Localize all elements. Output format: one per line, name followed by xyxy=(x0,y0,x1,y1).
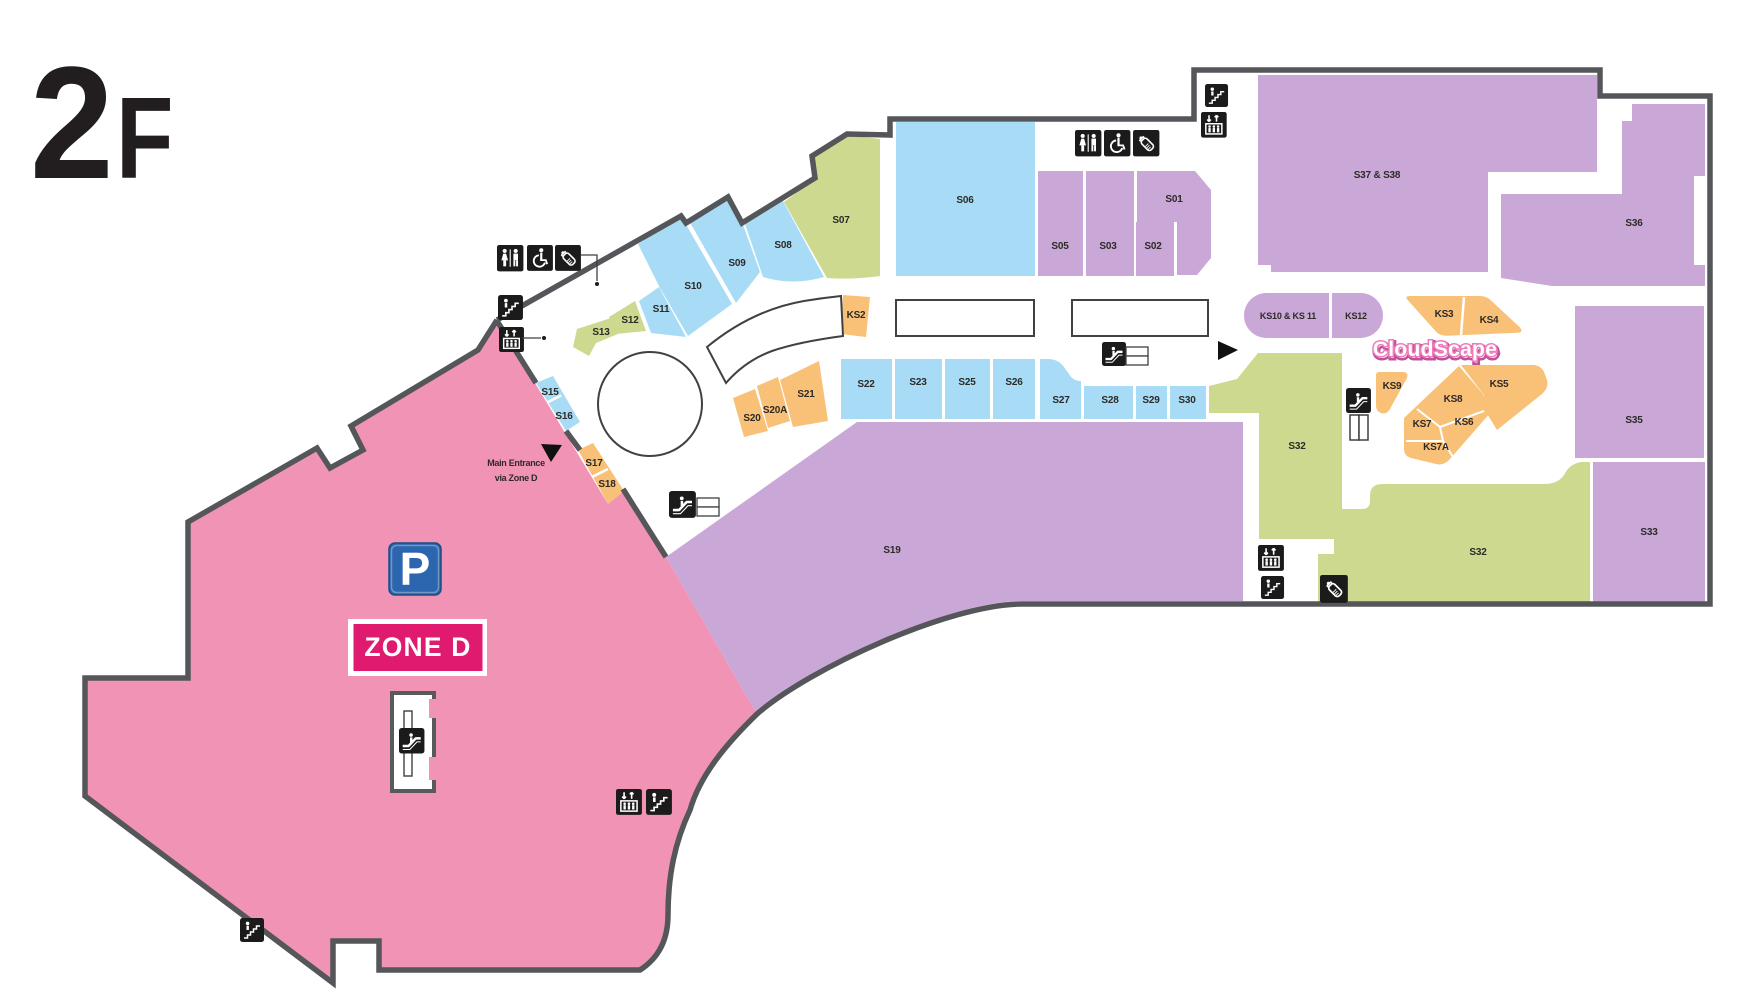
svg-text:S03: S03 xyxy=(1099,241,1117,252)
svg-text:S21: S21 xyxy=(797,389,815,400)
svg-text:S32: S32 xyxy=(1288,441,1306,452)
svg-text:S32: S32 xyxy=(1469,547,1487,558)
svg-text:S33: S33 xyxy=(1640,527,1658,538)
svg-text:KS12: KS12 xyxy=(1345,311,1367,321)
svg-text:via Zone D: via Zone D xyxy=(495,473,538,483)
svg-text:KS10 & KS 11: KS10 & KS 11 xyxy=(1260,311,1316,321)
svg-text:S25: S25 xyxy=(958,377,976,388)
svg-text:KS7: KS7 xyxy=(1413,419,1432,430)
svg-text:S22: S22 xyxy=(857,379,875,390)
svg-text:S01: S01 xyxy=(1165,194,1183,205)
svg-text:S07: S07 xyxy=(832,215,850,226)
svg-text:KS9: KS9 xyxy=(1383,381,1402,392)
svg-text:S23: S23 xyxy=(909,377,927,388)
svg-text:KS3: KS3 xyxy=(1435,309,1454,320)
svg-text:ZONE D: ZONE D xyxy=(364,632,471,662)
svg-text:S11: S11 xyxy=(653,304,670,315)
svg-text:S13: S13 xyxy=(592,327,610,338)
svg-text:KS5: KS5 xyxy=(1490,379,1509,390)
svg-text:KS7A: KS7A xyxy=(1423,442,1449,453)
svg-text:S20: S20 xyxy=(743,413,761,424)
svg-text:S05: S05 xyxy=(1051,241,1069,252)
svg-text:S35: S35 xyxy=(1625,415,1643,426)
svg-text:S37 & S38: S37 & S38 xyxy=(1354,170,1401,181)
svg-text:S27: S27 xyxy=(1052,395,1070,406)
svg-text:S17: S17 xyxy=(585,458,603,469)
svg-text:Main Entrance: Main Entrance xyxy=(487,458,545,468)
svg-text:S28: S28 xyxy=(1101,395,1119,406)
svg-text:KS4: KS4 xyxy=(1480,315,1499,326)
svg-text:S09: S09 xyxy=(728,258,746,269)
svg-text:KS2: KS2 xyxy=(847,310,866,321)
svg-text:S02: S02 xyxy=(1144,241,1162,252)
svg-text:S08: S08 xyxy=(774,240,792,251)
svg-text:2: 2 xyxy=(30,33,114,212)
svg-text:S29: S29 xyxy=(1142,395,1160,406)
svg-text:F: F xyxy=(116,74,173,204)
svg-text:S16: S16 xyxy=(555,411,573,422)
svg-text:S36: S36 xyxy=(1625,218,1643,229)
svg-text:S19: S19 xyxy=(883,545,901,556)
svg-text:S10: S10 xyxy=(684,281,702,292)
svg-text:CloudScape: CloudScape xyxy=(1373,338,1497,361)
svg-text:S26: S26 xyxy=(1005,377,1023,388)
svg-text:S30: S30 xyxy=(1178,395,1196,406)
svg-text:KS6: KS6 xyxy=(1455,417,1474,428)
svg-text:S06: S06 xyxy=(956,195,974,206)
svg-text:P: P xyxy=(400,543,431,595)
svg-text:S20A: S20A xyxy=(763,405,787,416)
svg-text:S18: S18 xyxy=(598,479,616,490)
svg-text:S12: S12 xyxy=(621,315,639,326)
svg-text:KS8: KS8 xyxy=(1444,394,1463,405)
